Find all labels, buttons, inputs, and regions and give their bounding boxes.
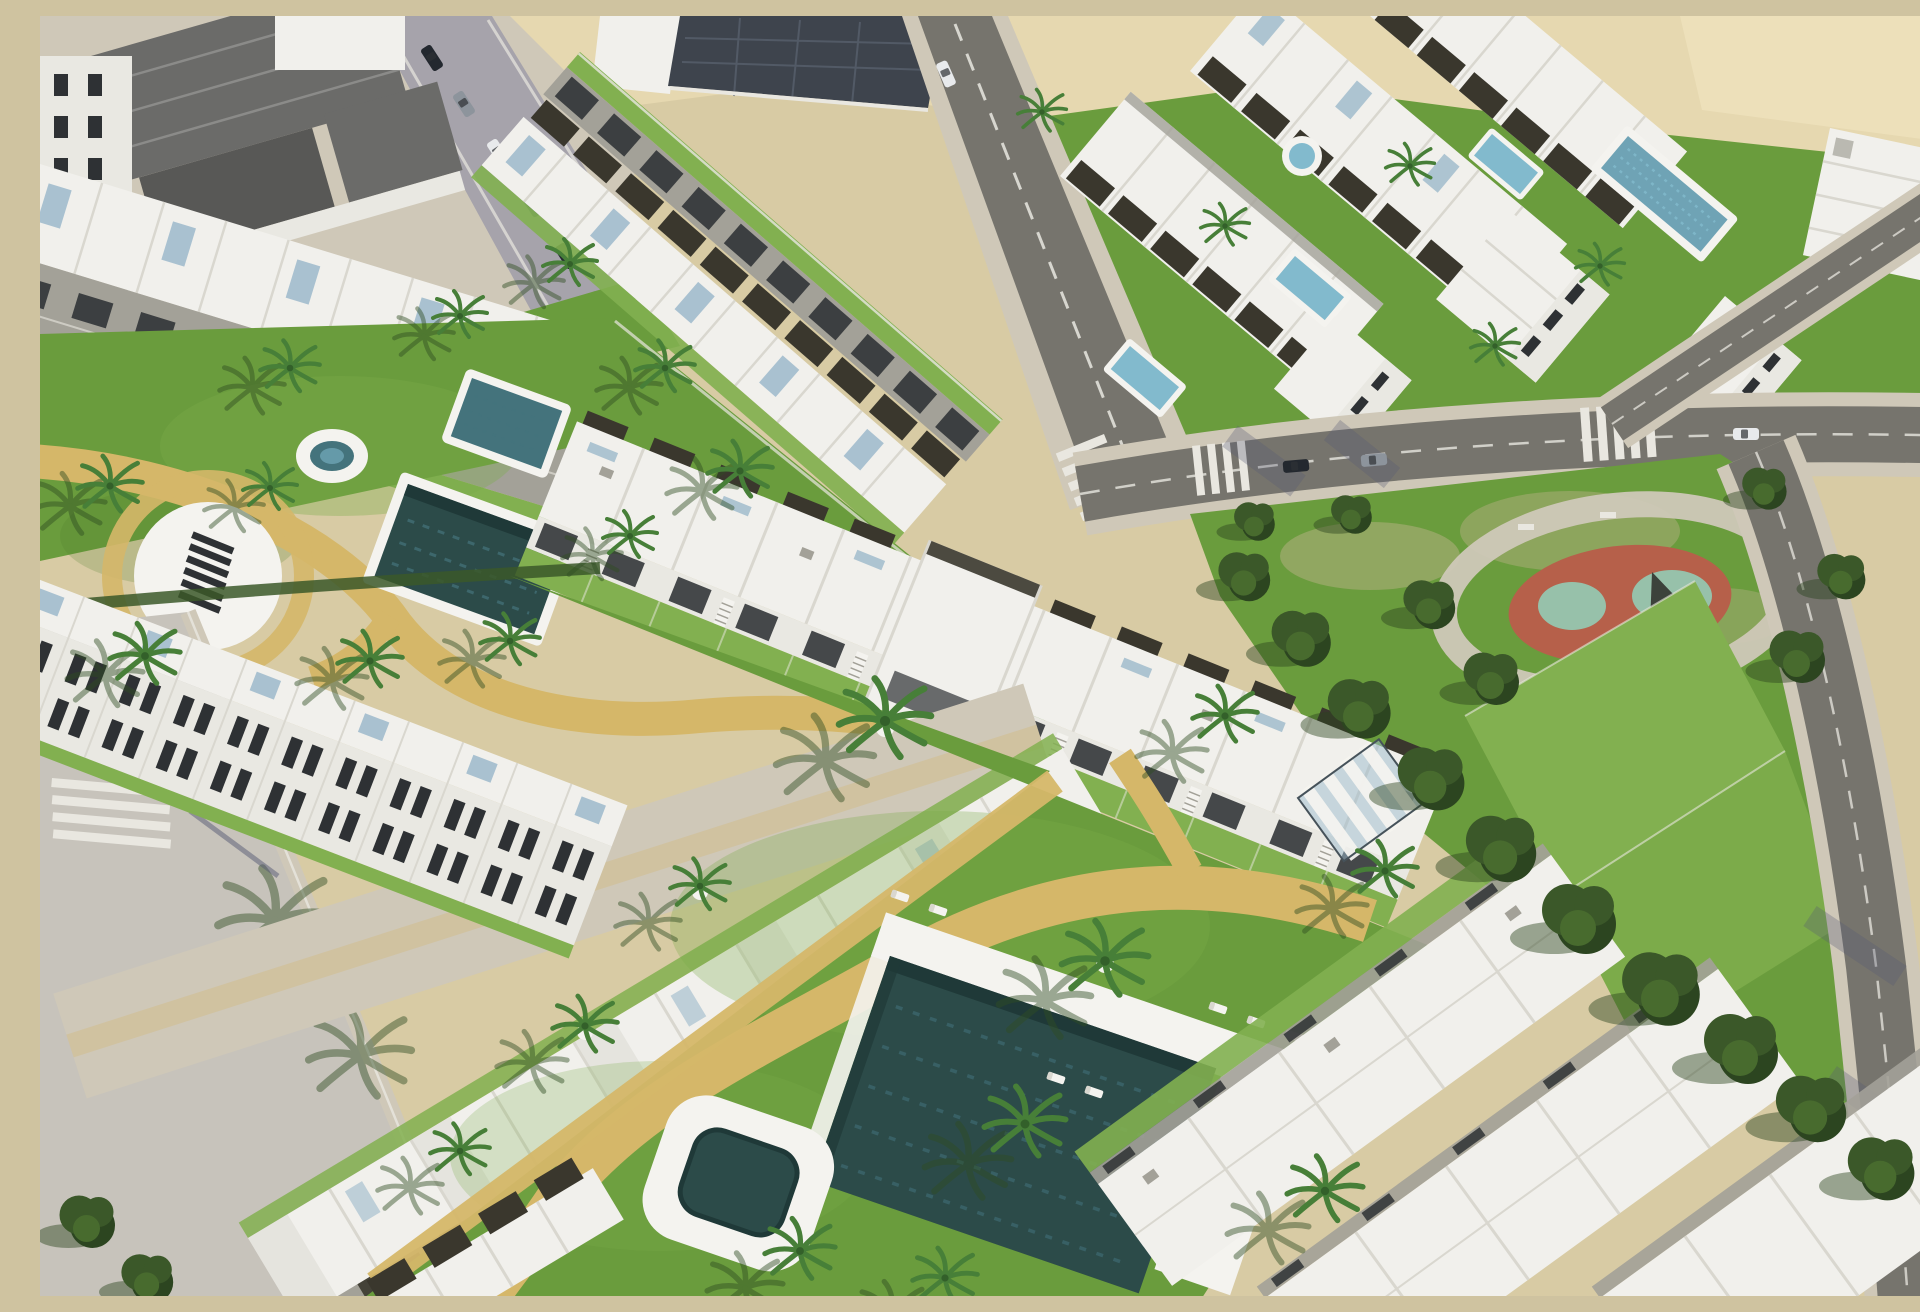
aerial-render-figure: Aerial 3D render of a Mediterranean coas… bbox=[40, 16, 1920, 1296]
aerial-render: Aerial 3D render of a Mediterranean coas… bbox=[40, 16, 1920, 1296]
white-flat-roof bbox=[275, 16, 405, 70]
garden-jacuzzi bbox=[296, 429, 368, 483]
car bbox=[1733, 428, 1759, 440]
car bbox=[1283, 459, 1310, 473]
bench bbox=[1518, 524, 1534, 530]
bench bbox=[1600, 512, 1616, 518]
car bbox=[1361, 453, 1388, 467]
